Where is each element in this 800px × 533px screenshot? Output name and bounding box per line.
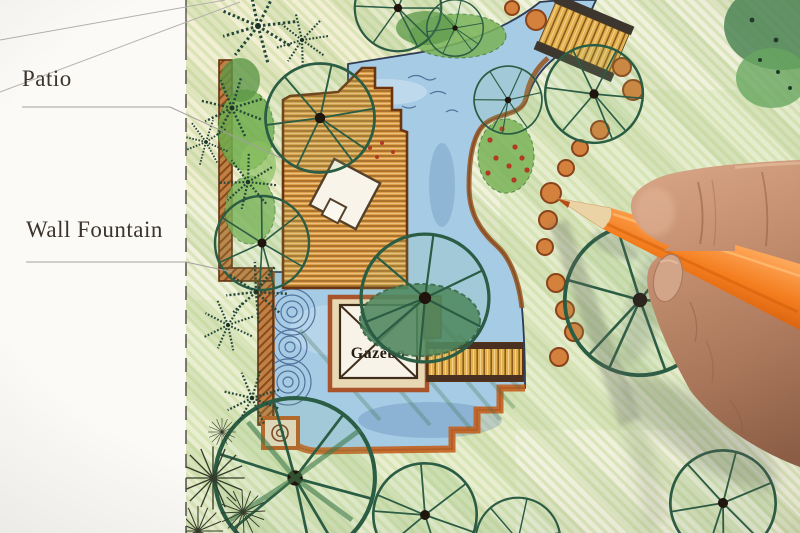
photo-landscape-plan: Gazebo [0, 0, 800, 533]
photo-vignette [0, 0, 800, 533]
plan-photo-canvas: Gazebo [0, 0, 800, 533]
